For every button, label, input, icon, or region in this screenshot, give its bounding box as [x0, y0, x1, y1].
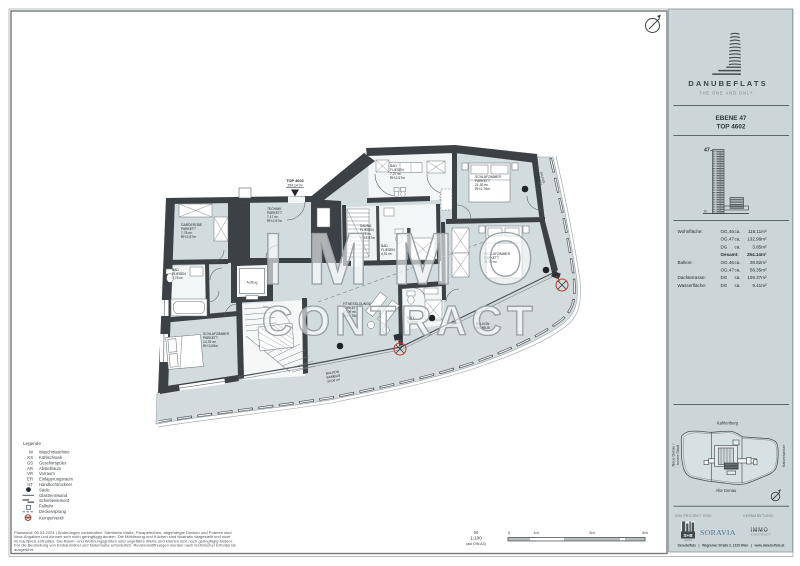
svg-text:TOP 4602: TOP 4602 — [286, 178, 304, 183]
svg-text:Abstellraum: Abstellraum — [39, 466, 62, 471]
svg-text:CONTRACT: CONTRACT — [262, 297, 538, 344]
svg-text:Alte Donau: Alte Donau — [716, 488, 737, 493]
svg-text:Kaiserwasser: Kaiserwasser — [782, 444, 786, 467]
svg-text:VR: VR — [27, 471, 33, 476]
svg-text:Für die Beurteilung von Einbau: Für die Beurteilung von Einbaumöbel und … — [14, 543, 236, 548]
svg-text:Balkon:: Balkon: — [678, 260, 693, 265]
svg-text:S+B: S+B — [683, 533, 693, 538]
svg-text:ca.: ca. — [735, 283, 741, 288]
svg-text:Innere Stadt: Innere Stadt — [676, 445, 680, 465]
svg-text:DANUBEFLATS: DANUBEFLATS — [688, 79, 768, 88]
svg-text:ca.: ca. — [735, 275, 741, 280]
svg-text:KS: KS — [27, 455, 33, 460]
svg-text:DG: DG — [721, 244, 728, 249]
svg-text:254.14 m²: 254.14 m² — [287, 183, 303, 187]
svg-text:7,76 m²: 7,76 m² — [172, 276, 184, 280]
svg-text:Legende: Legende — [23, 441, 41, 446]
svg-text:118.11m²: 118.11m² — [748, 229, 767, 234]
svg-text:Neue Donau /: Neue Donau / — [672, 443, 676, 467]
svg-text:IMMO: IMMO — [263, 219, 558, 300]
svg-text:GRUPPE: GRUPPE — [684, 540, 693, 542]
svg-text:ca.: ca. — [735, 237, 741, 242]
svg-text:RH:2,57m: RH:2,57m — [181, 235, 196, 239]
svg-text:AR: AR — [27, 466, 33, 471]
svg-text:OG.46: OG.46 — [721, 260, 735, 265]
svg-text:Danubeflats | Wagramer Str: Danubeflats | Wagramer Straße 2, 1220 Wi… — [678, 544, 786, 548]
svg-text:1m: 1m — [533, 530, 539, 535]
svg-text:THE ONE AND ONLY.: THE ONE AND ONLY. — [699, 91, 755, 96]
svg-text:OG.47: OG.47 — [721, 237, 735, 242]
svg-text:1:100: 1:100 — [470, 536, 482, 541]
svg-text:RH:3,05m: RH:3,05m — [203, 344, 218, 348]
svg-text:Gesamt:: Gesamt: — [721, 252, 740, 257]
svg-text:OG.47: OG.47 — [721, 268, 735, 273]
svg-text:5m: 5m — [642, 530, 648, 535]
svg-text:132.98m²: 132.98m² — [747, 237, 767, 242]
svg-text:Aufzug: Aufzug — [247, 281, 258, 285]
svg-text:SORAVIA: SORAVIA — [700, 528, 736, 537]
svg-text:Vorraum: Vorraum — [39, 471, 55, 476]
svg-text:109.37m²: 109.37m² — [747, 275, 767, 280]
svg-text:OG.46: OG.46 — [721, 229, 735, 234]
svg-text:Einlagerungsraum: Einlagerungsraum — [39, 477, 73, 482]
svg-text:Schiebeelement: Schiebeelement — [39, 498, 70, 503]
svg-text:Handtuchtrockner: Handtuchtrockner — [39, 482, 73, 487]
svg-text:ca.: ca. — [735, 229, 741, 234]
svg-text:DG: DG — [721, 275, 728, 280]
svg-text:ca.: ca. — [735, 268, 741, 273]
svg-text:9.41m²: 9.41m² — [752, 283, 767, 288]
svg-text:W: W — [29, 450, 33, 455]
svg-text:Kahlenberg: Kahlenberg — [717, 421, 739, 426]
svg-text:RH:2,57m: RH:2,57m — [390, 176, 405, 180]
svg-text:Fallrohr: Fallrohr — [39, 504, 54, 509]
svg-text:GS: GS — [27, 460, 33, 465]
svg-text:Säule: Säule — [39, 487, 50, 492]
svg-text:ausgeführt.: ausgeführt. — [14, 547, 34, 552]
svg-text:CONTRACT: CONTRACT — [751, 533, 771, 537]
svg-text:Geschirrspüler: Geschirrspüler — [39, 460, 67, 465]
svg-text:Deckensprung: Deckensprung — [39, 509, 67, 514]
svg-text:28.82m²: 28.82m² — [750, 260, 767, 265]
svg-text:Kühlschrank: Kühlschrank — [39, 455, 63, 460]
svg-text:HT: HT — [27, 482, 33, 487]
svg-text:M: M — [474, 530, 478, 535]
svg-text:EBENE 47: EBENE 47 — [716, 115, 747, 122]
svg-text:3m: 3m — [589, 530, 595, 535]
svg-text:VERMARKTUNG:: VERMARKTUNG: — [743, 514, 774, 518]
svg-text:254.14m²: 254.14m² — [747, 252, 767, 257]
svg-text:Kemperventil: Kemperventil — [39, 515, 64, 520]
svg-text:58.35m²: 58.35m² — [750, 268, 767, 273]
svg-text:ca.: ca. — [735, 244, 741, 249]
svg-text:Wasserfläche:: Wasserfläche: — [678, 283, 707, 288]
svg-text:ca.: ca. — [735, 260, 741, 265]
svg-text:3.85m²: 3.85m² — [752, 244, 767, 249]
svg-text:Dachterrasse:: Dachterrasse: — [678, 275, 706, 280]
svg-text:TOP 4602: TOP 4602 — [717, 124, 746, 131]
svg-text:Waschmaschine: Waschmaschine — [39, 450, 70, 455]
svg-text:RH:2,76m: RH:2,76m — [475, 187, 490, 191]
svg-text:Glastrennwand: Glastrennwand — [39, 493, 68, 498]
svg-text:ER: ER — [27, 477, 33, 482]
svg-text:DG: DG — [721, 283, 728, 288]
svg-text:30: 30 — [704, 210, 708, 214]
svg-text:(auf DIN A3): (auf DIN A3) — [466, 542, 486, 546]
svg-text:EIN PROJEKT VON:: EIN PROJEKT VON: — [676, 514, 713, 518]
svg-text:47: 47 — [704, 148, 710, 154]
svg-text:Wohnfläche:: Wohnfläche: — [678, 229, 703, 234]
